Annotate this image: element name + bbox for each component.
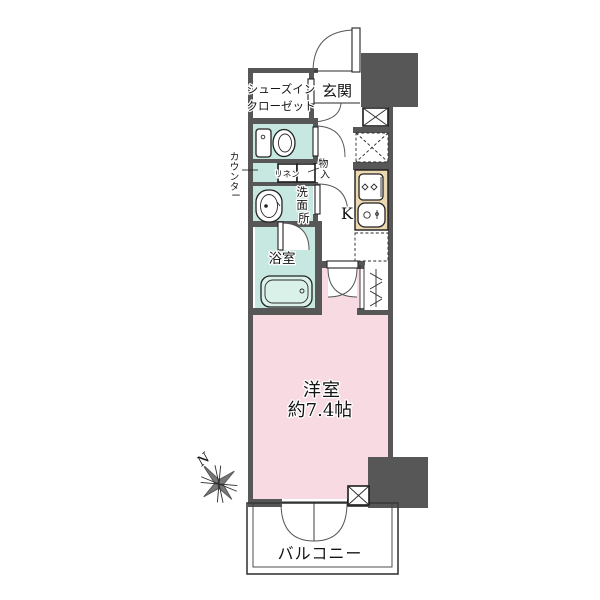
- structure-block-bottom: [368, 457, 428, 508]
- structure-block-top: [361, 53, 418, 107]
- storage-label: 物 入: [318, 157, 331, 181]
- floor-plan: N シューズイン クローゼット 玄関 リネン 浴室 K 洋室 約7.4帖 バルコ…: [0, 0, 600, 600]
- toilet-door-leaf: [313, 127, 318, 156]
- compass-north-label: N: [193, 449, 214, 470]
- balcony: [247, 502, 398, 574]
- entrance-door-leaf: [352, 28, 360, 72]
- shoes-closet-label-1: シューズイン: [247, 82, 315, 96]
- linen-label: リネン: [274, 170, 300, 180]
- bathroom-label: 浴室: [269, 250, 296, 267]
- shoes-closet-label-2: クローゼット: [247, 99, 316, 113]
- pipe-space-box: [363, 108, 388, 126]
- washroom-label: 洗 面 所: [296, 185, 311, 225]
- room-door-leaf: [327, 261, 358, 268]
- compass: N: [187, 449, 247, 512]
- pipe-space-box-bottom: [348, 486, 369, 505]
- entrance-door-arc: [313, 30, 356, 72]
- washroom-door-leaf: [315, 185, 320, 214]
- bathtub: [261, 276, 312, 307]
- kitchen-sink: [358, 203, 385, 227]
- balcony-door-arc-left: [281, 503, 314, 541]
- counter-label: カ ウ ン タ ー: [230, 152, 243, 202]
- bathroom-door-leaf: [278, 222, 283, 250]
- entrance-label: 玄関: [322, 82, 352, 100]
- washbasin: [256, 190, 282, 222]
- balcony-door-arc-right: [314, 503, 347, 541]
- stove: [359, 174, 383, 200]
- closet: [360, 265, 388, 310]
- floor-plan-svg: N シューズイン クローゼット 玄関 リネン 浴室 K 洋室 約7.4帖 バルコ…: [0, 0, 600, 600]
- kitchen-label: K: [341, 204, 354, 223]
- balcony-label: バルコニー: [278, 544, 363, 563]
- room-name-label: 洋室: [303, 380, 341, 401]
- room-size-label: 約7.4帖: [288, 400, 353, 421]
